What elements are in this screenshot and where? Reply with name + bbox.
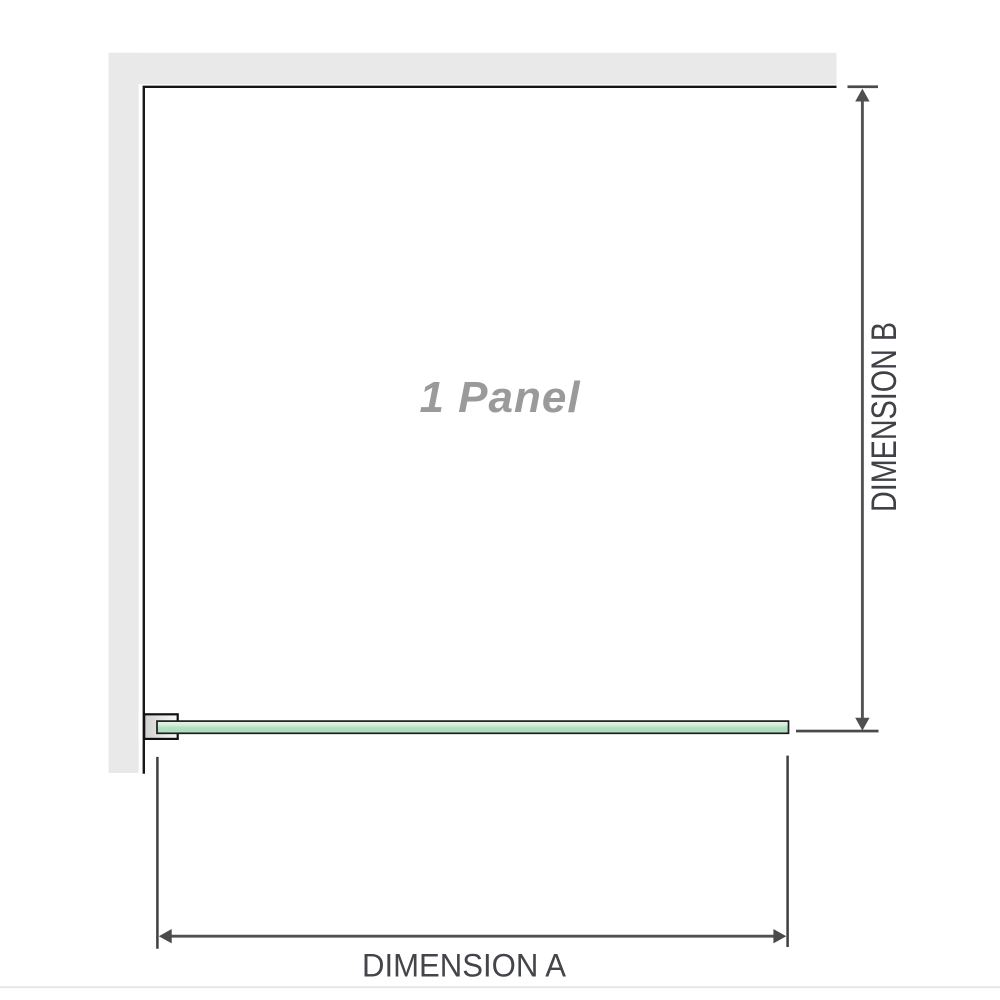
- svg-text:1 Panel: 1 Panel: [419, 373, 580, 422]
- svg-text:DIMENSION B: DIMENSION B: [865, 322, 904, 512]
- svg-text:DIMENSION A: DIMENSION A: [362, 947, 567, 983]
